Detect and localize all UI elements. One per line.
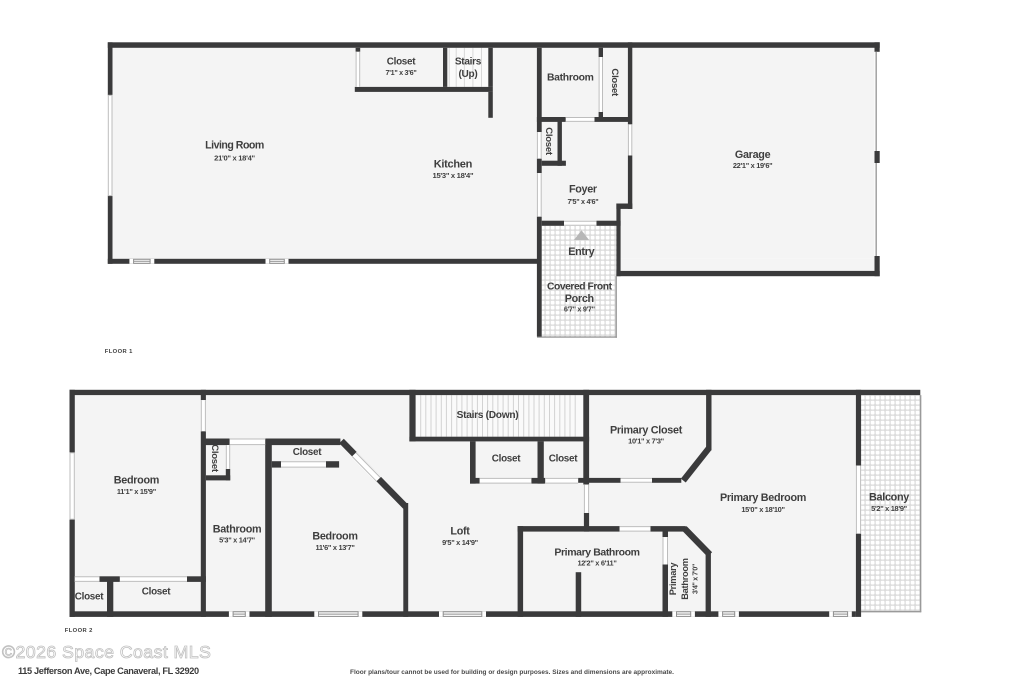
svg-text:15'0" x 18'10": 15'0" x 18'10" [741, 505, 785, 514]
svg-text:6'7" x 9'7": 6'7" x 9'7" [564, 304, 595, 313]
svg-text:Closet: Closet [75, 592, 104, 603]
svg-text:9'5" x 14'9": 9'5" x 14'9" [442, 538, 478, 547]
svg-text:3'4" x 7'0": 3'4" x 7'0" [692, 564, 699, 594]
svg-text:11'1" x 15'9": 11'1" x 15'9" [117, 487, 157, 496]
svg-text:Closet: Closet [549, 453, 578, 464]
svg-text:Garage: Garage [735, 149, 771, 161]
svg-text:Primary Bedroom: Primary Bedroom [720, 492, 806, 504]
svg-text:Primary Bathroom: Primary Bathroom [554, 546, 639, 558]
svg-text:Balcony: Balcony [869, 491, 909, 503]
svg-text:15'3" x 18'4": 15'3" x 18'4" [433, 171, 474, 180]
svg-text:Bedroom: Bedroom [114, 474, 159, 486]
svg-text:Loft: Loft [450, 526, 470, 538]
svg-text:Bathroom: Bathroom [680, 558, 690, 600]
svg-text:Stairs: Stairs [455, 56, 482, 67]
svg-text:Closet: Closet [543, 127, 554, 156]
svg-text:5'3" x 14'7": 5'3" x 14'7" [219, 535, 255, 544]
svg-text:Bathroom: Bathroom [547, 73, 594, 84]
svg-text:10'1" x 7'3": 10'1" x 7'3" [628, 436, 664, 445]
svg-text:Covered Front: Covered Front [547, 282, 613, 293]
svg-text:Closet: Closet [293, 447, 322, 458]
svg-text:Kitchen: Kitchen [434, 159, 473, 171]
svg-text:FLOOR 2: FLOOR 2 [65, 628, 93, 634]
svg-text:115 Jefferson Ave, Cape Canave: 115 Jefferson Ave, Cape Canaveral, FL 32… [18, 666, 199, 676]
svg-text:Foyer: Foyer [569, 184, 598, 196]
svg-text:21'0" x 18'4": 21'0" x 18'4" [214, 154, 255, 163]
svg-text:Primary Closet: Primary Closet [610, 424, 683, 436]
svg-text:Bedroom: Bedroom [312, 530, 357, 542]
svg-text:Closet: Closet [609, 68, 620, 97]
svg-text:Closet: Closet [142, 587, 171, 598]
svg-text:Entry: Entry [568, 246, 594, 258]
svg-text:FLOOR 1: FLOOR 1 [105, 349, 133, 355]
svg-text:Living Room: Living Room [205, 140, 264, 152]
svg-text:22'1" x 19'6": 22'1" x 19'6" [733, 161, 773, 170]
svg-text:Primary: Primary [668, 562, 678, 596]
svg-text:12'2" x 6'11": 12'2" x 6'11" [577, 559, 617, 568]
svg-text:7'5" x 4'6": 7'5" x 4'6" [567, 197, 598, 206]
svg-text:Porch: Porch [565, 293, 594, 305]
svg-text:Bathroom: Bathroom [213, 523, 262, 535]
svg-text:Closet: Closet [387, 57, 416, 68]
svg-text:11'6" x 13'7": 11'6" x 13'7" [315, 543, 355, 552]
svg-text:(Up): (Up) [459, 69, 478, 80]
svg-text:Closet: Closet [209, 444, 220, 473]
svg-text:Stairs (Down): Stairs (Down) [457, 410, 519, 421]
svg-text:7'1" x 3'6": 7'1" x 3'6" [386, 68, 417, 77]
svg-text:Floor plans/tour cannot be use: Floor plans/tour cannot be used for buil… [350, 669, 674, 676]
svg-text:5'2" x 18'9": 5'2" x 18'9" [871, 504, 907, 513]
svg-text:Closet: Closet [492, 453, 521, 464]
svg-text:©2026 Space Coast MLS: ©2026 Space Coast MLS [2, 642, 211, 662]
